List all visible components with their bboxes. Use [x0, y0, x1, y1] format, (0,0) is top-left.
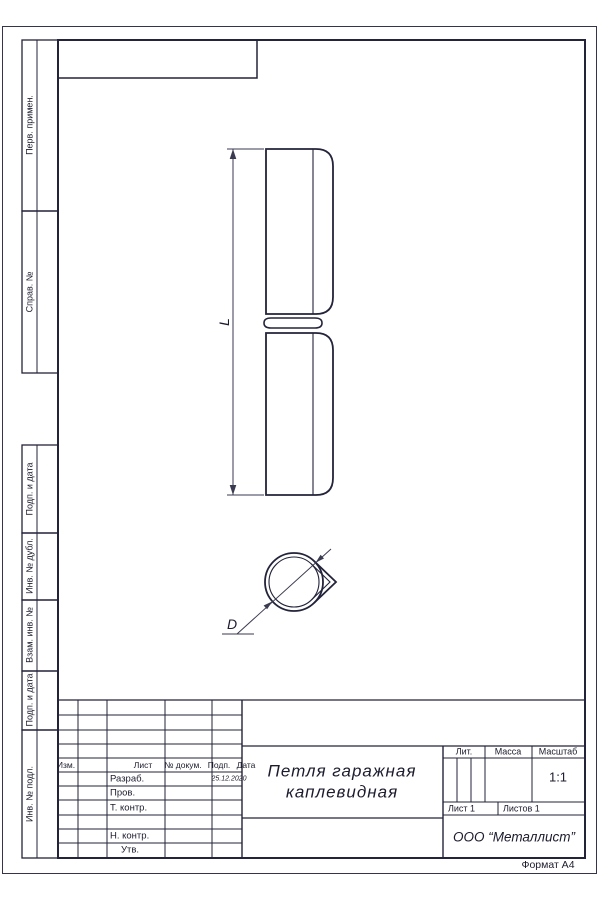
diameter-dimension-label: D — [227, 617, 237, 631]
header-izm: Изм. — [57, 761, 75, 770]
sidebar-boxes — [22, 40, 58, 858]
inner-frame — [58, 40, 585, 858]
header-list: Лист — [134, 761, 152, 770]
length-dimension-label: L — [217, 318, 231, 326]
row-approved: Утв. — [121, 845, 139, 855]
sidebar-label-repl-inv: Взам. инв. № — [26, 607, 35, 663]
mass-header: Масса — [495, 748, 522, 757]
sidebar-label-sign-date-1: Подп. и дата — [26, 462, 35, 515]
row-checked: Пров. — [110, 788, 135, 798]
hinge-front-view — [264, 149, 333, 495]
dimension-length — [227, 149, 264, 495]
sidebar-label-inv-dupl: Инв. № дубл. — [26, 538, 35, 594]
drawing-sheet: Перв. примен. Справ. № Подп. и дата Инв.… — [0, 0, 600, 900]
sheet-number: Лист 1 — [448, 805, 475, 814]
developed-date: 25.12.2020 — [211, 776, 246, 783]
hinge-section-view — [265, 553, 336, 611]
row-tech-control: Т. контр. — [110, 803, 147, 813]
format-note: Формат А4 — [521, 860, 574, 871]
header-sign: Подп. — [208, 761, 231, 770]
top-designation-box — [58, 40, 257, 78]
lit-header: Лит. — [456, 748, 473, 757]
header-date: Дата — [237, 761, 256, 770]
sidebar-label-sign-date-2: Подп. и дата — [26, 673, 35, 726]
document-title-line2: каплевидная — [286, 784, 398, 801]
row-norm-control: Н. контр. — [110, 831, 149, 841]
header-doc-num: № докум. — [164, 761, 201, 770]
sidebar-label-first-use: Перв. примен. — [26, 95, 35, 155]
document-title-line1: Петля гаражная — [268, 763, 417, 780]
scale-value: 1:1 — [549, 771, 567, 784]
sidebar-label-ref-number: Справ. № — [26, 272, 35, 313]
row-developed: Разраб. — [110, 774, 144, 784]
company-name: ООО “Металлист” — [453, 830, 575, 844]
scale-header: Масштаб — [539, 748, 578, 757]
sheets-total: Листов 1 — [503, 805, 540, 814]
sidebar-label-inv-orig: Инв. № подл. — [26, 766, 35, 822]
